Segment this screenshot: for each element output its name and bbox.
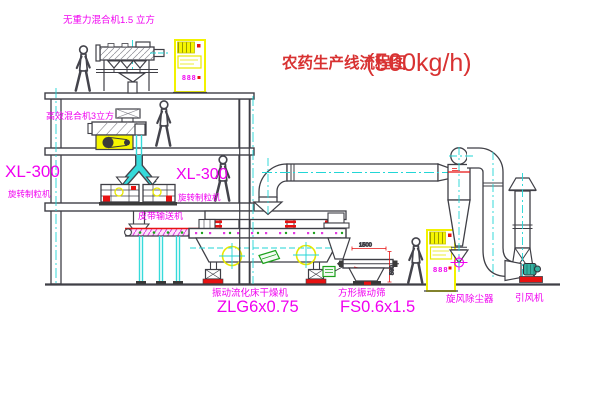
page-title-capacity: (500kg/h) <box>366 49 472 77</box>
dryer-discharge-funnel <box>328 238 350 259</box>
worker-figure <box>156 101 170 146</box>
label-granulator-model-mid: XL-300 <box>176 166 228 183</box>
cabinet-panel <box>431 247 452 259</box>
gravity-free-mixer <box>96 40 168 93</box>
label-cyclone: 旋风除尘器 <box>446 293 494 305</box>
control-cabinet-top: 888 <box>173 40 207 93</box>
cabinet-display: 888 <box>182 75 197 82</box>
label-fan: 引风机 <box>515 292 544 304</box>
y-chute <box>117 155 159 185</box>
belt-conveyor <box>125 229 200 285</box>
induced-draft-fan <box>505 261 543 283</box>
flow-diagram-page: 888 <box>0 0 600 403</box>
fan-inlet <box>505 261 521 281</box>
label-gravity-free-mixer: 无重力混合机1.5 立方 <box>63 14 155 26</box>
label-granulator-model-left: XL-300 <box>5 162 60 181</box>
exhaust-duct <box>254 158 452 216</box>
sieve-hopper <box>349 268 384 281</box>
indicator-lamp-icon <box>449 267 452 270</box>
label-belt-conveyor: 皮带输送机 <box>138 210 183 221</box>
worker-figure <box>76 46 90 91</box>
dryer-hood <box>205 211 346 220</box>
indicator-lamp-icon <box>197 44 201 48</box>
fan-base <box>520 277 543 283</box>
flow-diagram: 888 <box>0 0 600 403</box>
cabinet-vent-grille <box>178 42 195 53</box>
dimension-length: 1500 <box>359 243 372 249</box>
conveyor-legs <box>140 236 180 283</box>
label-granulator-name-left: 旋转制粒机 <box>8 189 51 199</box>
label-granulator-name-mid: 旋转制粒机 <box>178 193 221 203</box>
cabinet-panel <box>178 56 201 68</box>
dryer-feed-inlet <box>199 220 215 229</box>
drive-pulley-icon <box>124 140 130 146</box>
dryer-outlet-box <box>328 213 344 223</box>
granulator-left <box>99 185 141 206</box>
sieve-motor <box>323 267 335 277</box>
dimension-height: 590 <box>390 265 396 275</box>
label-high-efficiency-mixer: 高效混合机3立方 <box>46 110 114 121</box>
control-cabinet-right: 888 <box>424 230 458 291</box>
label-dryer-model: ZLG6x0.75 <box>217 298 299 316</box>
indicator-lamp-icon <box>198 76 201 79</box>
belt-pulley-icon <box>125 229 132 236</box>
cabinet-display: 888 <box>433 265 449 274</box>
worker-figure <box>408 238 422 283</box>
label-sieve-model: FS0.6x1.5 <box>340 298 415 316</box>
indicator-lamp-icon <box>448 234 452 238</box>
granulator-right <box>141 185 177 206</box>
motor-pulley-icon <box>103 137 114 148</box>
cabinet-vent-grille <box>430 232 446 244</box>
